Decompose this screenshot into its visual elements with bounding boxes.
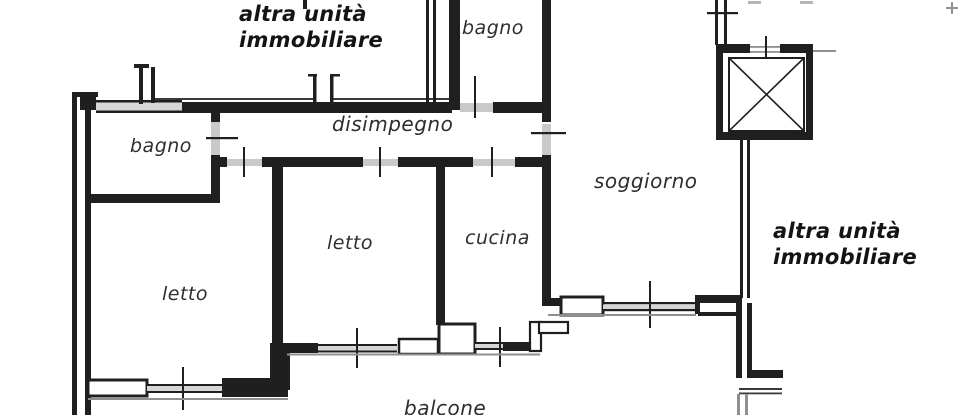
room-label-disimpegno: disimpegno xyxy=(332,112,453,136)
door-tick xyxy=(491,147,493,177)
window-tick xyxy=(182,367,184,410)
corner-tick xyxy=(946,2,958,14)
window-tick xyxy=(356,328,358,368)
room-label-bagno-top: bagno xyxy=(462,17,524,39)
wall-tick xyxy=(707,12,738,14)
door-opening xyxy=(460,103,493,112)
neighbor-unit-label-right: altra unità immobiliare xyxy=(773,218,917,270)
wall-stub xyxy=(308,74,340,102)
living-room-south-wall xyxy=(548,281,742,328)
neighbor-unit-label-top: altra unità immobiliare xyxy=(239,1,383,53)
south-facade xyxy=(88,298,568,410)
neighbor-unit-label-line1: altra unità xyxy=(239,2,367,26)
east-wall xyxy=(736,303,783,415)
window-opening xyxy=(147,367,222,410)
wall-stub xyxy=(752,370,783,378)
room-label-bagno-left: bagno xyxy=(130,135,192,157)
wall-stub xyxy=(134,64,155,104)
room-label-letto-middle: letto xyxy=(327,232,373,254)
window-opening xyxy=(603,281,695,328)
room-label-balcone: balcone xyxy=(404,396,486,415)
window-opening xyxy=(475,327,503,367)
floor-plan-drawing xyxy=(0,0,960,415)
balcony-edge-line xyxy=(88,398,288,400)
door-opening xyxy=(473,159,515,166)
room-label-soggiorno: soggiorno xyxy=(594,169,697,193)
balcony-door-block xyxy=(439,324,475,354)
neighbor-unit-label-line2: immobiliare xyxy=(773,245,917,269)
balcony-edge-line xyxy=(548,314,696,316)
window-tick xyxy=(649,281,651,328)
door-tick xyxy=(531,132,566,134)
room-label-letto-left: letto xyxy=(162,283,208,305)
window-tick xyxy=(499,327,501,367)
outer-wall-left xyxy=(72,92,98,415)
door-opening xyxy=(542,124,551,155)
living-room-left-wall xyxy=(531,124,566,301)
door-tick xyxy=(206,137,238,139)
room-label-cucina: cucina xyxy=(465,227,530,249)
door-tick xyxy=(474,76,476,118)
neighbor-unit-label-line1: altra unità xyxy=(773,219,901,243)
door-tick xyxy=(379,147,381,177)
window-opening xyxy=(318,328,397,368)
door-tick xyxy=(243,147,245,177)
balcony-edge-line xyxy=(287,354,540,356)
floor-plan-page: altra unità immobiliare bagno disimpegno… xyxy=(0,0,960,415)
neighbor-unit-label-line2: immobiliare xyxy=(239,28,383,52)
hallway-walls xyxy=(211,147,548,177)
